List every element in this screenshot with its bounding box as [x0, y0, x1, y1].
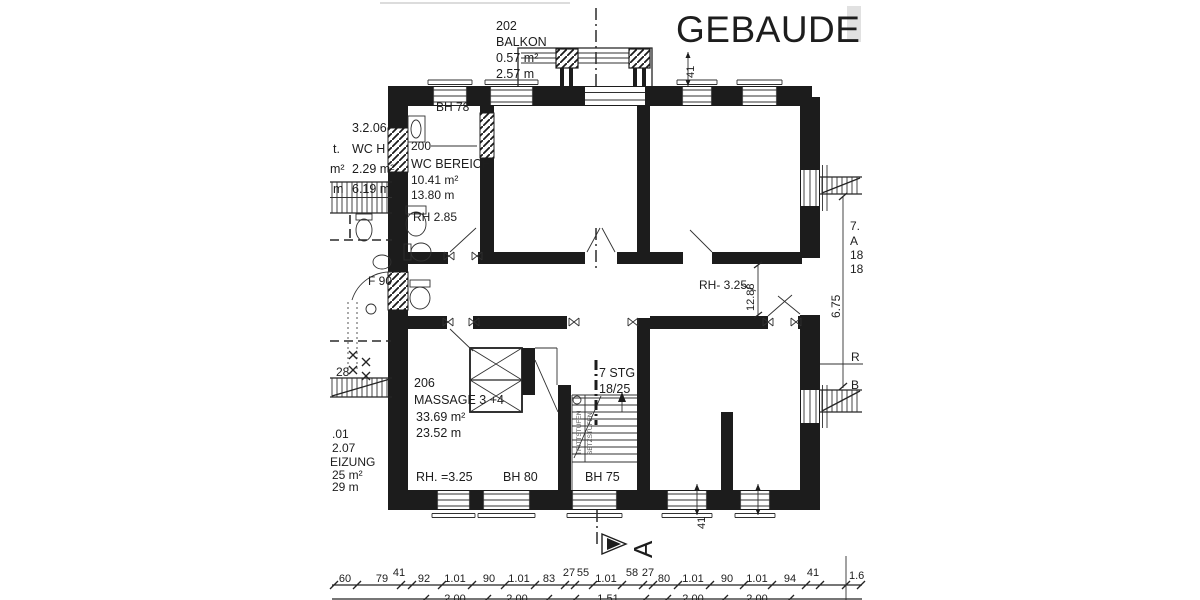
hatch-diagonal	[332, 379, 390, 396]
arrowhead-icon	[756, 509, 761, 515]
left-fragment: m²	[330, 162, 345, 176]
left-fragment: m	[333, 182, 343, 196]
right-fragment: B	[851, 378, 859, 392]
right-fragment: A	[850, 234, 858, 248]
balcony-dim: 41	[685, 66, 697, 78]
toilet-icon	[410, 280, 430, 287]
stair-start-circle	[573, 396, 581, 404]
dimension-label: 41	[393, 567, 405, 579]
left-label: 29 m	[332, 480, 359, 494]
massage-area: 33.69 m²	[416, 410, 465, 424]
left-fragment: 28	[336, 365, 350, 379]
left-label: 3.2.06	[352, 121, 387, 135]
dimension-label: 2.00	[682, 593, 703, 600]
dimension-label: 1.01	[595, 573, 616, 585]
right-neighbor-unit	[820, 177, 863, 412]
dimension-label: 79	[376, 573, 388, 585]
dimension-label: 2.00	[746, 593, 767, 600]
massage-length: 23.52 m	[416, 426, 461, 440]
wc-bh: BH 78	[436, 100, 470, 114]
left-fragment: t.	[333, 142, 340, 156]
left-label: 2.29 m²	[352, 162, 394, 176]
stair-side-text: SETZSTUFEN	[587, 412, 594, 455]
left-label: EIZUNG	[330, 455, 375, 469]
right-fragment: R	[851, 350, 860, 364]
dimension-label: 41	[807, 567, 819, 579]
hatch-diagonal	[822, 178, 860, 193]
stairs-ratio: 18/25	[599, 382, 630, 396]
dimension-label: 90	[721, 573, 733, 585]
dimension-label: 1.51	[597, 593, 618, 600]
wc-length: 13.80 m	[411, 188, 454, 202]
balcony-door	[585, 87, 645, 105]
dimension-label: 27	[563, 567, 575, 579]
wc-rh: RH 2.85	[413, 210, 457, 224]
f90-label: F 90	[368, 274, 392, 288]
arrowhead-icon	[695, 509, 700, 515]
dimension-label: 80	[658, 573, 670, 585]
right-fragment: 18	[850, 262, 864, 276]
dimension-label: 1.01	[508, 573, 529, 585]
stairs-bh: BH 75	[585, 470, 620, 484]
right-fragment: 7.	[850, 219, 860, 233]
hatch-diagonal	[822, 391, 860, 411]
stairs-count: 7 STG	[599, 366, 635, 380]
stair-side-text: TRITTSTUFEN	[576, 410, 583, 455]
balcony-area: 0.57 m²	[496, 51, 538, 65]
left-label: 6.19 m	[352, 182, 390, 196]
arrowhead-icon	[686, 52, 691, 58]
left-label: .01	[332, 427, 349, 441]
wc-number: 200	[411, 139, 431, 153]
hatched-wall	[480, 113, 494, 158]
balcony-name: BALKON	[496, 35, 547, 49]
wall-stub	[721, 412, 733, 492]
dimension-label: 2.00	[506, 593, 527, 600]
right-dim: 6.75	[829, 294, 843, 318]
section-letter: A	[628, 540, 658, 558]
dimension-label: 92	[418, 573, 430, 585]
dimension-label: 27	[642, 567, 654, 579]
dimension-label: 60	[339, 573, 351, 585]
balcony-length: 2.57 m	[496, 67, 534, 81]
dimension-label: 1.01	[682, 573, 703, 585]
floorplan-page: A	[0, 0, 1200, 600]
arrowhead-icon	[695, 484, 700, 490]
dimension-label: 90	[483, 573, 495, 585]
right-fragment: 18	[850, 248, 864, 262]
left-label: 2.07	[332, 441, 356, 455]
wc-area: 10.41 m²	[411, 173, 458, 187]
scan-artifact	[380, 2, 570, 4]
massage-name: MASSAGE 3 +4	[414, 393, 504, 407]
left-label: WC H	[352, 142, 385, 156]
dimension-label: 1.01	[444, 573, 465, 585]
dimension-chain: 607941921.01901.018327551.015827801.0190…	[330, 556, 865, 600]
balcony-post	[629, 49, 650, 68]
floorplan-drawing: A	[0, 0, 1200, 600]
balcony-number: 202	[496, 19, 517, 33]
arrowhead-icon	[686, 80, 691, 86]
arrowhead-icon	[756, 484, 761, 490]
dimension-label: 94	[784, 573, 796, 585]
massage-rh: RH. =3.25	[416, 470, 473, 484]
massage-bh: BH 80	[503, 470, 538, 484]
page-title: GEBAUDE	[676, 9, 860, 50]
dimension-label: 55	[577, 567, 589, 579]
balcony-post	[556, 49, 578, 68]
corridor-rh: RH- 3.25	[699, 278, 747, 292]
massage-number: 206	[414, 376, 435, 390]
dimension-label: 2.00	[444, 593, 465, 600]
dimension-label: 1.01	[746, 573, 767, 585]
dimension-label: 58	[626, 567, 638, 579]
dimension-label: 1.6	[849, 570, 864, 582]
dimension-label: 41	[696, 517, 708, 529]
wc-name: WC BEREICH	[411, 157, 491, 171]
corridor-dim-label: 12.88	[745, 283, 757, 311]
dimension-label: 83	[543, 573, 555, 585]
door-opening	[800, 258, 820, 315]
